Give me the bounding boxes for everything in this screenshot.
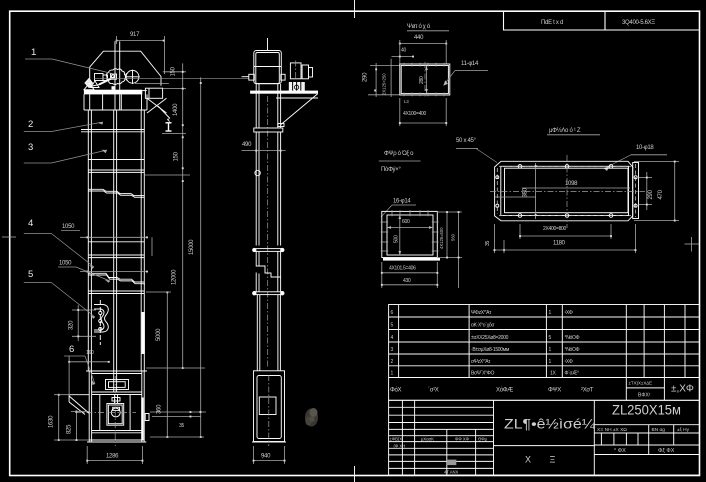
svg-text:Φξ ΦΧ: Φξ ΦΧ <box>658 448 675 454</box>
svg-text:50 x 45°: 50 x 45° <box>456 138 477 144</box>
svg-text:ΠdE t x d: ΠdE t x d <box>541 20 563 26</box>
svg-text:35: 35 <box>485 241 491 246</box>
svg-text:360: 360 <box>157 404 163 414</box>
svg-text:Ψøτ ó ΋χ ó: Ψøτ ó ΋χ ó <box>407 24 431 30</box>
svg-text:940: 940 <box>261 454 271 460</box>
svg-text:160: 160 <box>86 350 94 356</box>
svg-text:5: 5 <box>28 269 33 280</box>
svg-text:440: 440 <box>414 35 424 41</box>
svg-text:° ΦΧ: ° ΦΧ <box>614 448 626 454</box>
svg-text:°ΝóΟΦ: °ΝóΟΦ <box>565 347 580 353</box>
svg-text:1180: 1180 <box>553 241 566 247</box>
svg-text:430: 430 <box>403 278 411 284</box>
svg-text:4X101.5=406: 4X101.5=406 <box>389 266 416 272</box>
svg-text:ΨΦzΧ°'Ατ: ΨΦzΧ°'Ατ <box>471 310 491 316</box>
svg-text:4Τ ΑΝΧ: 4Τ ΑΝΧ <box>444 470 459 475</box>
svg-text:470: 470 <box>658 189 664 199</box>
svg-text:2X400=800: 2X400=800 <box>543 226 567 232</box>
svg-text:´σ¹Χ: ´σ¹Χ <box>428 388 439 394</box>
svg-text:ZL¶•ê½ìσé¼: ZL¶•ê½ìσé¼ <box>504 416 595 432</box>
svg-text:35: 35 <box>179 423 184 429</box>
svg-text:ΧόΦÆ: ΧόΦÆ <box>496 387 513 394</box>
svg-text:·Β±σμΧø8-1500мм: ·Β±σμΧø8-1500мм <box>471 347 510 353</box>
svg-text:(Φ ΧΗ: (Φ ΧΗ <box>394 443 406 448</box>
svg-text:²ΧσΤ: ²ΧσΤ <box>581 388 594 394</box>
svg-text:°ΝóΟΦ: °ΝóΟΦ <box>565 335 580 341</box>
svg-text:12000: 12000 <box>172 269 178 285</box>
svg-text:3: 3 <box>28 142 33 153</box>
svg-text:280: 280 <box>419 76 425 84</box>
svg-text:±ξ Ηγ: ±ξ Ηγ <box>677 427 690 433</box>
svg-text:6: 6 <box>69 344 74 355</box>
svg-text:320: 320 <box>69 320 75 330</box>
svg-text:¹ΧΦ: ¹ΧΦ <box>565 310 573 316</box>
svg-text:αΚ·Χ°ο´χõσ: αΚ·Χ°ο´χõσ <box>471 323 495 329</box>
svg-text:15000: 15000 <box>189 239 195 255</box>
svg-text:16-φ14: 16-φ14 <box>393 199 411 205</box>
svg-text:150: 150 <box>174 151 180 161</box>
svg-text:380: 380 <box>523 187 529 197</box>
svg-text:μΧασΚ: μΧασΚ <box>421 437 434 442</box>
svg-text:±,ΧΦ: ±,ΧΦ <box>671 384 694 395</box>
svg-text:Ξ: Ξ <box>550 455 556 465</box>
svg-text:4X125=500: 4X125=500 <box>439 227 444 249</box>
svg-text:Χ: Χ <box>525 455 531 465</box>
svg-text:ΒσΨ´Χ°ΦΟ: ΒσΨ´Χ°ΦΟ <box>471 371 494 377</box>
svg-text:40: 40 <box>401 48 406 54</box>
svg-text:ΧΞ ΝΗ ±Χ ΧΩ: ΧΞ ΝΗ ±Χ ΧΩ <box>597 427 627 433</box>
svg-text:2: 2 <box>28 119 33 130</box>
svg-text:1098: 1098 <box>565 181 578 187</box>
svg-text:917: 917 <box>130 32 140 38</box>
svg-text:L3: L3 <box>404 99 409 104</box>
svg-text:±ΦΒ(Χ': ±ΦΒ(Χ' <box>390 437 404 442</box>
svg-text:500: 500 <box>394 235 400 243</box>
svg-text:290: 290 <box>648 189 654 199</box>
svg-text:Φ´σÆ°: Φ´σÆ° <box>565 371 580 377</box>
svg-text:ΦΦ ΧΦ: ΦΦ ΧΦ <box>455 437 470 442</box>
svg-text:290: 290 <box>363 72 369 82</box>
svg-text:600: 600 <box>402 219 410 225</box>
svg-text:1630: 1630 <box>49 415 55 428</box>
svg-text:ΒΦΧ²: ΒΦΧ² <box>638 393 651 399</box>
svg-text:11-φ14: 11-φ14 <box>461 61 479 67</box>
svg-text:ΦόΧ: ΦόΧ <box>390 387 402 394</box>
svg-text:ΦΨΧ: ΦΨΧ <box>548 388 561 394</box>
svg-text:1050: 1050 <box>59 261 72 267</box>
svg-text:ΠòΦý×°: ΠòΦý×° <box>381 167 401 173</box>
svg-text:ZL250X15м: ZL250X15м <box>612 403 681 418</box>
svg-text:ΒΝ αg: ΒΝ αg <box>652 427 666 433</box>
svg-text:490: 490 <box>242 142 252 148</box>
svg-text:ΘΦμ: ΘΦμ <box>478 437 488 442</box>
svg-text:1050: 1050 <box>62 224 75 230</box>
svg-text:1Χ: 1Χ <box>550 371 556 377</box>
svg-text:ΦΨρ ó Όξ ο: ΦΨρ ó Όξ ο <box>384 151 414 157</box>
svg-text:4: 4 <box>28 218 33 229</box>
svg-text:560: 560 <box>451 233 456 241</box>
svg-text:4X100=400: 4X100=400 <box>403 111 427 117</box>
svg-text:±ΤΧ)Χ±ΧΔE: ±ΤΧ)Χ±ΧΔE <box>629 381 653 386</box>
svg-text:10-φ18: 10-φ18 <box>636 145 654 151</box>
svg-text:1400: 1400 <box>173 103 179 116</box>
svg-text:μΦ½Λο ό ¹ Ζ: μΦ½Λο ό ¹ Ζ <box>549 127 581 134</box>
svg-text:¹ΧΦ: ¹ΧΦ <box>565 359 573 365</box>
svg-text:3Q400-5.6XΞ: 3Q400-5.6XΞ <box>622 20 655 26</box>
svg-text:5000: 5000 <box>156 328 162 341</box>
svg-text:1: 1 <box>31 47 36 58</box>
svg-text:±σΧΧ25Χø8=2000: ±σΧΧ25Χø8=2000 <box>471 335 509 341</box>
svg-text:σΨzΧ°'Ατ: σΨzΧ°'Ατ <box>471 359 490 365</box>
svg-text:1286: 1286 <box>106 454 119 460</box>
svg-text:2X125=250: 2X125=250 <box>382 73 387 95</box>
svg-text:825: 825 <box>67 424 73 434</box>
